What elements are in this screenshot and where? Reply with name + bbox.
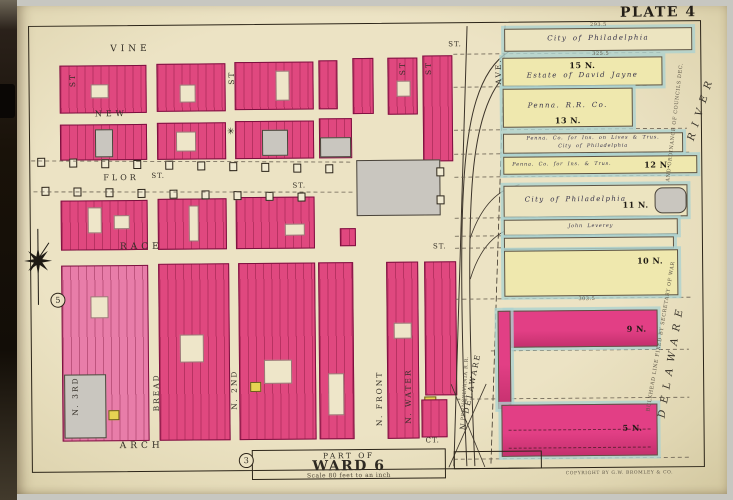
adjacent-plate-5: 5	[50, 293, 65, 308]
pier-9n: 9 N.	[506, 309, 658, 347]
street-label-nfront: N. FRONT	[374, 363, 384, 433]
pier-dash-line	[509, 447, 651, 449]
pier-16n: City of Philadelphia	[504, 27, 692, 52]
pier-14n: Penna. Co. for Ins. on Lives & Trus. Cit…	[503, 132, 683, 154]
measurement: 303.5	[578, 296, 595, 302]
el-pillar	[37, 158, 45, 167]
building-patch	[275, 71, 289, 101]
street-label-st-fragment: ST	[424, 58, 433, 78]
building-patch	[397, 81, 411, 97]
el-pillar	[165, 161, 173, 170]
map-star-symbol: ✳	[227, 127, 235, 137]
street-label-flor: FLOR	[103, 173, 139, 182]
el-pillar	[137, 189, 145, 198]
el-pillar	[436, 167, 444, 176]
city-block	[158, 198, 227, 250]
el-pillar	[229, 162, 237, 171]
building-patch	[108, 410, 119, 420]
street-label-delaware-ave: AVE.	[494, 56, 503, 86]
plate-title: PLATE 4	[620, 4, 697, 21]
adjacent-plate-3: 3	[239, 453, 254, 468]
street-label-nwater: N. WATER	[403, 361, 413, 431]
el-pillar	[197, 161, 205, 170]
el-pillar	[293, 164, 301, 173]
el-pillar	[169, 190, 177, 199]
building-patch	[250, 382, 261, 392]
city-block	[386, 262, 420, 439]
pier-number: 13 N.	[504, 115, 632, 126]
el-pillar	[101, 159, 109, 168]
pier-unlabeled	[504, 236, 674, 249]
el-pillar	[69, 159, 77, 168]
building-patch	[95, 129, 113, 157]
building-patch	[285, 224, 305, 236]
city-block	[235, 120, 314, 159]
el-pillar	[297, 193, 305, 202]
pier-number: 15 N.	[503, 59, 661, 70]
pier-13n: Penna. R.R. Co. 13 N.	[503, 88, 633, 128]
ward-title-box-right	[454, 450, 542, 469]
el-pillar	[233, 191, 241, 200]
city-block	[234, 61, 313, 110]
measurement: 293.5	[590, 22, 607, 28]
pier-15n: 15 N. Estate of David Jayne	[502, 56, 662, 86]
street-label-bread: BREAD	[151, 362, 161, 422]
building-patch	[176, 131, 196, 151]
pier-owner: City of Philadelphia	[505, 33, 691, 43]
building-patch	[90, 296, 108, 318]
street-label-st-fragment: ST	[398, 58, 407, 78]
building-patch	[114, 215, 130, 229]
pier-owner: John Leverey	[505, 222, 677, 230]
el-pillar	[437, 195, 445, 204]
pier-10n: 10 N.	[504, 249, 678, 297]
city-block	[319, 118, 352, 158]
street-label-n2nd: N. 2ND	[229, 360, 239, 420]
street-label-race: RACE	[120, 242, 163, 252]
pier-number: 11 N.	[623, 200, 649, 210]
el-pillar	[105, 188, 113, 197]
city-block	[318, 262, 355, 439]
el-pillar	[265, 192, 273, 201]
pier-number: 9 N.	[627, 324, 647, 334]
city-block	[318, 60, 337, 109]
shore-strip	[498, 311, 512, 409]
street-label-st-fragment: ST	[68, 70, 77, 90]
building-patch	[262, 130, 288, 156]
city-block	[156, 63, 225, 112]
building-patch	[189, 205, 199, 241]
pier-owner: Penna. Co. for Ins. on Lives & Trus.	[504, 134, 682, 142]
map-content: PLATE 4	[0, 0, 733, 500]
building-patch	[328, 373, 344, 415]
building-patch	[88, 207, 102, 233]
street-label-new: NEW	[95, 109, 128, 118]
building-patch	[394, 323, 412, 339]
street-label-arch: ARCH	[120, 441, 164, 451]
city-block	[157, 122, 226, 160]
city-block	[158, 263, 231, 441]
el-pillar	[325, 164, 333, 173]
el-pillar	[73, 187, 81, 196]
pier-owner: City of Philadelphia	[504, 142, 682, 150]
el-pillar	[261, 163, 269, 172]
street-label-vine-ext: ST.	[448, 40, 462, 48]
copyright: COPYRIGHT BY G.W. BROMLEY & CO.	[557, 470, 682, 476]
measurement: 325.5	[592, 51, 609, 57]
building-patch	[180, 334, 204, 362]
city-block	[60, 124, 147, 161]
pier-john-leverey: John Leverey	[504, 218, 678, 236]
street-label-flor-ext: ST.	[292, 182, 306, 190]
building-patch	[180, 84, 196, 102]
city-block	[424, 261, 457, 395]
street-label-arch-ext: CT.	[426, 436, 440, 444]
ward-title-box: PART OF WARD 6 Scale 80 feet to an inch	[252, 448, 446, 480]
street-label-st-fragment: ST	[227, 68, 236, 88]
pier-11n: City of Philadelphia 11 N.	[503, 184, 687, 218]
building-patch	[91, 84, 109, 98]
el-pillar	[133, 160, 141, 169]
el-pillar	[201, 190, 209, 199]
street-label-flor-suffix: ST.	[151, 172, 165, 180]
city-block	[340, 228, 356, 246]
building-patch	[264, 360, 292, 384]
pier-5n: 5 N.	[501, 403, 657, 456]
atlas-photo: PLATE 4	[0, 0, 733, 500]
building-patch	[320, 137, 351, 157]
city-block	[352, 58, 373, 114]
pier-owner: Penna. Co. for Ins. & Trus.	[512, 161, 611, 168]
city-block	[236, 196, 315, 249]
el-pillar	[41, 187, 49, 196]
street-label-n3rd: N. 3RD	[71, 366, 81, 426]
pier-owner: Penna. R.R. Co.	[504, 101, 632, 110]
station-building	[356, 159, 440, 216]
city-block	[421, 399, 447, 437]
pier-shed	[654, 187, 686, 213]
pier-owner: Estate of David Jayne	[503, 70, 661, 79]
street-label-race-ext: ST.	[433, 242, 447, 250]
street-label-vine: VINE	[110, 44, 151, 54]
scale-label: Scale 80 feet to an inch	[253, 471, 445, 480]
city-block	[238, 262, 317, 440]
pier-number: 10 N.	[637, 255, 663, 265]
